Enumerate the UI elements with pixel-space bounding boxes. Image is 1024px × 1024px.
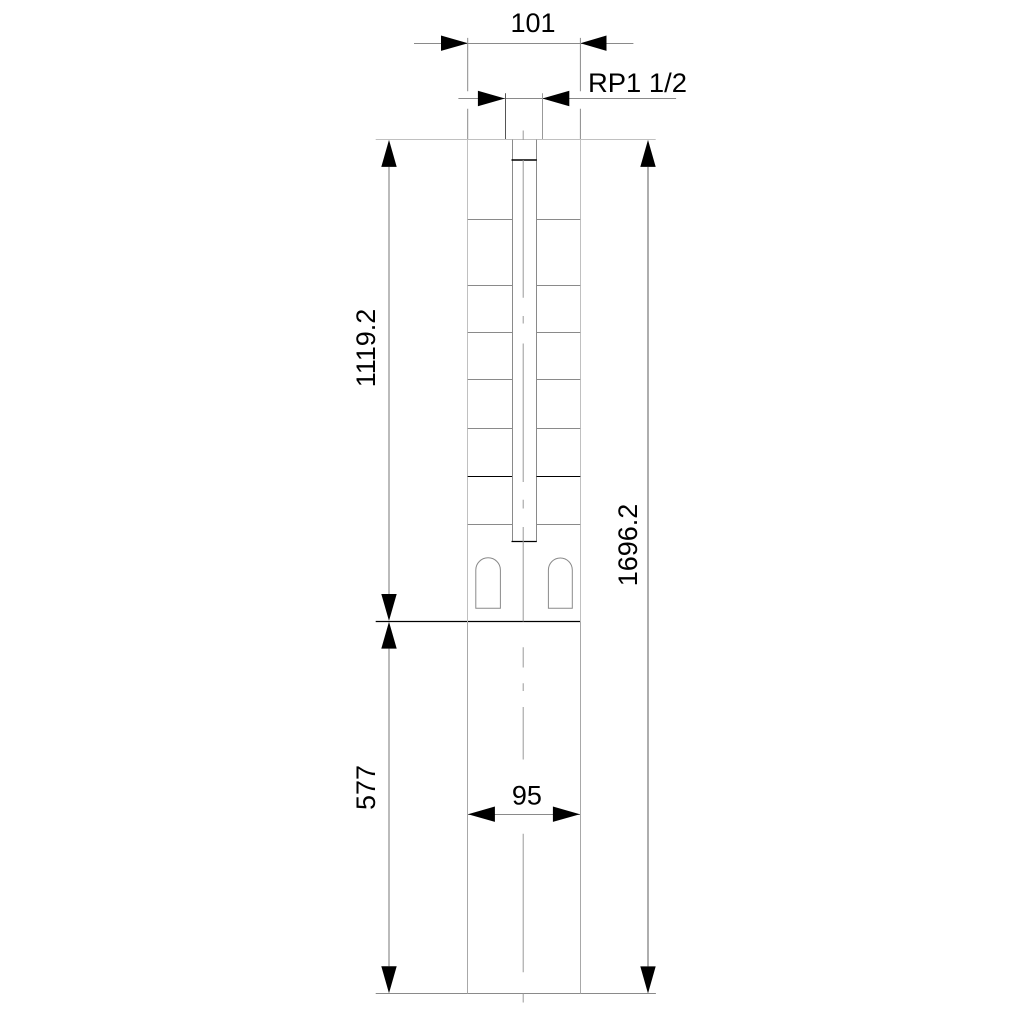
svg-text:1696.2: 1696.2 xyxy=(613,504,643,587)
svg-text:577: 577 xyxy=(351,765,381,810)
svg-text:101: 101 xyxy=(510,8,555,38)
svg-text:1119.2: 1119.2 xyxy=(351,309,381,388)
svg-text:RP1 1/2: RP1 1/2 xyxy=(588,68,687,98)
svg-text:95: 95 xyxy=(512,781,542,811)
